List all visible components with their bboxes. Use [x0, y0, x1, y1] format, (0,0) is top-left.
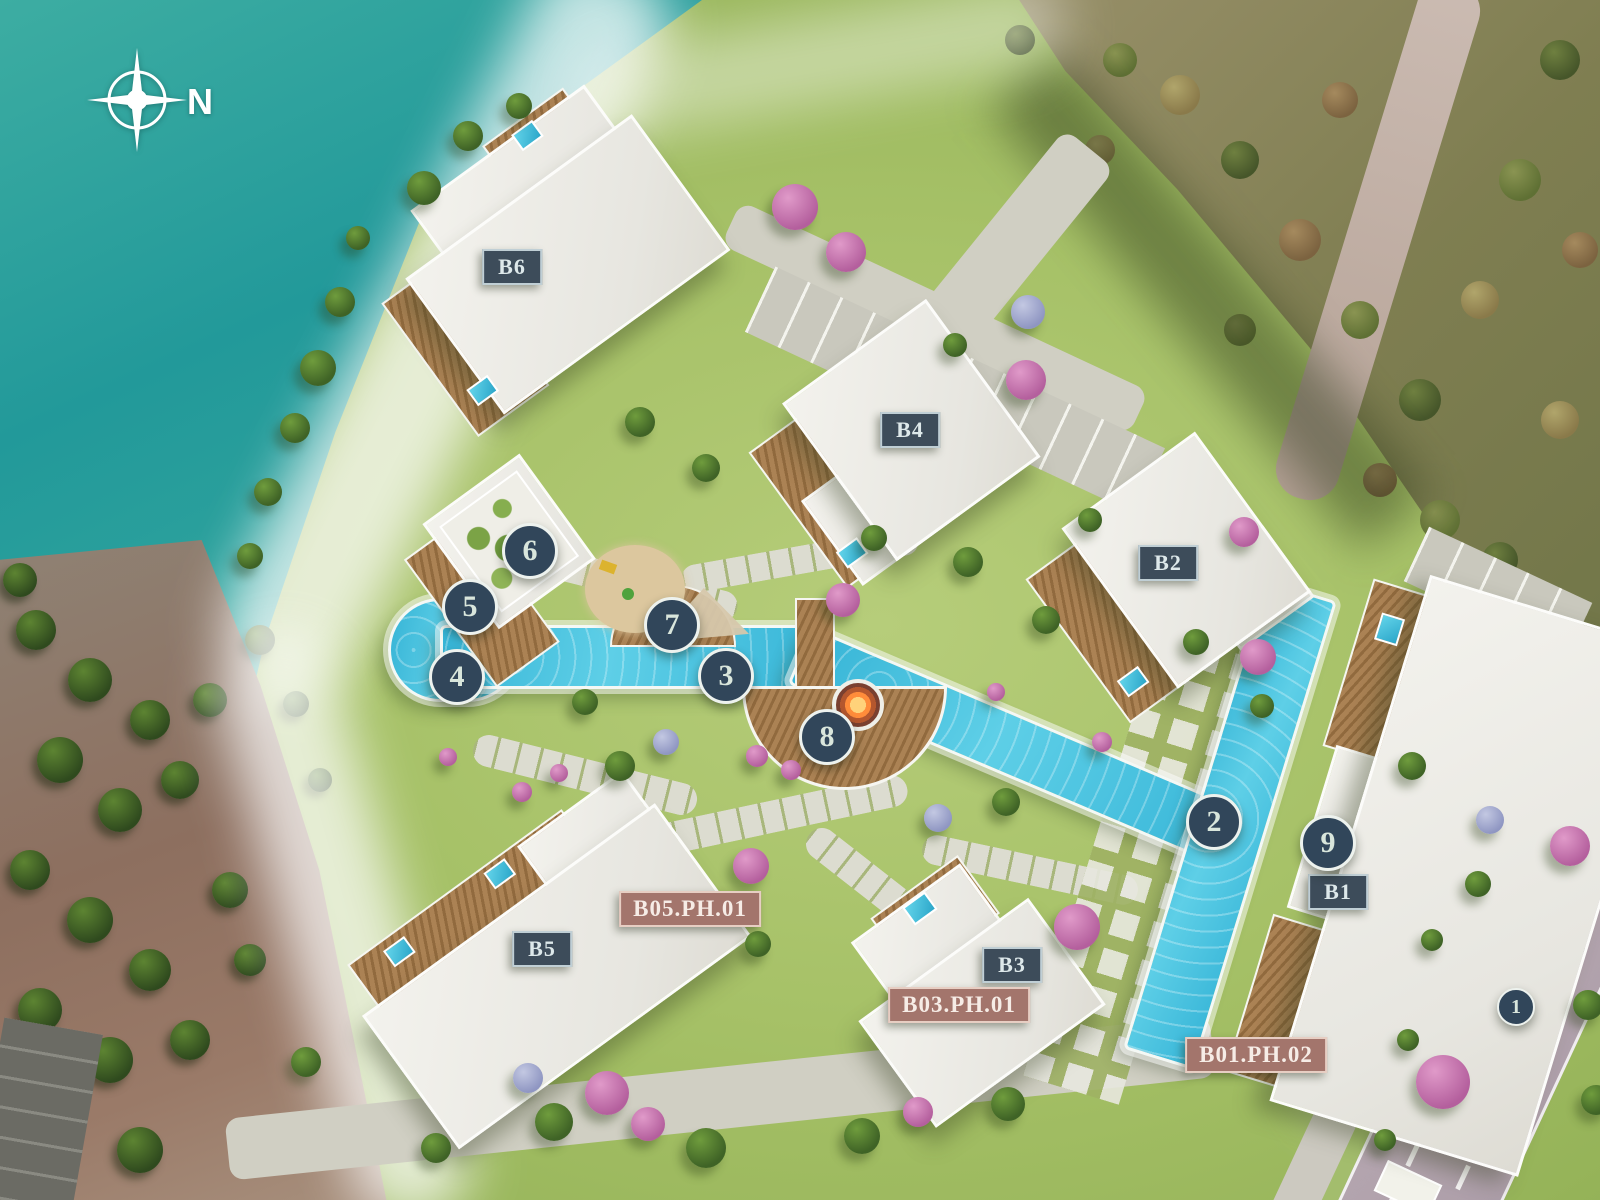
bougainvillea-tree — [585, 1071, 629, 1115]
tree — [861, 525, 887, 551]
mangrove-tree — [10, 850, 50, 890]
compass-rose — [72, 35, 202, 165]
mangrove-tree — [98, 788, 142, 832]
site-marker-7[interactable]: 7 — [644, 597, 700, 653]
mangrove-tree — [129, 949, 171, 991]
bougainvillea-tree — [1240, 639, 1276, 675]
mangrove-tree — [3, 563, 37, 597]
flower-bush — [550, 764, 568, 782]
bougainvillea-tree — [1550, 826, 1590, 866]
site-marker-2[interactable]: 2 — [1186, 794, 1242, 850]
mangrove-tree — [68, 658, 112, 702]
tree — [300, 350, 336, 386]
bougainvillea-tree — [1416, 1055, 1470, 1109]
building-label-b4[interactable]: B4 — [880, 412, 940, 448]
phase-label-b01-ph02[interactable]: B01.PH.02 — [1185, 1037, 1327, 1073]
forest-tree — [1562, 232, 1598, 268]
mangrove-tree — [212, 872, 248, 908]
flower-bush — [781, 760, 801, 780]
tree — [1032, 606, 1060, 634]
tree — [421, 1133, 451, 1163]
bougainvillea-tree — [1229, 517, 1259, 547]
tree — [407, 171, 441, 205]
site-marker-9[interactable]: 9 — [1300, 815, 1356, 871]
tree — [1421, 929, 1443, 951]
tree — [692, 454, 720, 482]
mangrove-tree — [130, 700, 170, 740]
bougainvillea-tree — [1006, 360, 1046, 400]
flower-bush — [746, 745, 768, 767]
tree — [325, 287, 355, 317]
tree — [1397, 1029, 1419, 1051]
mangrove-tree — [67, 897, 113, 943]
jacaranda-tree — [513, 1063, 543, 1093]
building-label-b5[interactable]: B5 — [512, 931, 572, 967]
mangrove-tree — [117, 1127, 163, 1173]
bougainvillea-tree — [903, 1097, 933, 1127]
bougainvillea-tree — [826, 232, 866, 272]
phase-label-b05-ph01[interactable]: B05.PH.01 — [619, 891, 761, 927]
forest-tree — [1461, 281, 1499, 319]
tree — [1078, 508, 1102, 532]
tree — [254, 478, 282, 506]
tree — [605, 751, 635, 781]
site-marker-1[interactable]: 1 — [1497, 988, 1535, 1026]
tree — [346, 226, 370, 250]
mangrove-tree — [161, 761, 199, 799]
forest-tree — [1541, 401, 1579, 439]
tree — [237, 543, 263, 569]
site-marker-4[interactable]: 4 — [429, 649, 485, 705]
site-marker-3[interactable]: 3 — [698, 648, 754, 704]
tree — [1465, 871, 1491, 897]
tree — [844, 1118, 880, 1154]
tree — [1581, 1085, 1600, 1115]
forest-tree — [1499, 159, 1541, 201]
bougainvillea-tree — [733, 848, 769, 884]
forest-tree — [1103, 43, 1137, 77]
jacaranda-tree — [1476, 806, 1504, 834]
bougainvillea-tree — [772, 184, 818, 230]
site-plan: N B6 B4 B2 B1 B5 B3 B05.PH.01 B03.PH.01 … — [0, 0, 1600, 1200]
flower-bush — [1092, 732, 1112, 752]
jacaranda-tree — [653, 729, 679, 755]
tree — [1374, 1129, 1396, 1151]
mangrove-tree — [170, 1020, 210, 1060]
forest-tree — [1341, 301, 1379, 339]
tree — [506, 93, 532, 119]
forest-tree — [1540, 40, 1580, 80]
jacaranda-tree — [1011, 295, 1045, 329]
tree — [535, 1103, 573, 1141]
tree — [1250, 694, 1274, 718]
building-label-b6[interactable]: B6 — [482, 249, 542, 285]
mangrove-tree — [16, 610, 56, 650]
site-marker-6[interactable]: 6 — [502, 523, 558, 579]
flower-bush — [987, 683, 1005, 701]
forest-tree — [1160, 75, 1200, 115]
building-label-b1[interactable]: B1 — [1308, 874, 1368, 910]
flower-bush — [512, 782, 532, 802]
building-label-b2[interactable]: B2 — [1138, 545, 1198, 581]
tree — [1183, 629, 1209, 655]
site-marker-8[interactable]: 8 — [799, 709, 855, 765]
tree — [280, 413, 310, 443]
tree — [686, 1128, 726, 1168]
tree — [953, 547, 983, 577]
tree — [1573, 990, 1600, 1020]
bougainvillea-tree — [631, 1107, 665, 1141]
tree — [625, 407, 655, 437]
flower-bush — [439, 748, 457, 766]
forest-tree — [1399, 379, 1441, 421]
tree — [943, 333, 967, 357]
tree — [291, 1047, 321, 1077]
phase-label-b03-ph01[interactable]: B03.PH.01 — [888, 987, 1030, 1023]
forest-tree — [1322, 82, 1358, 118]
forest-tree — [1279, 219, 1321, 261]
mangrove-tree — [37, 737, 83, 783]
jacaranda-tree — [924, 804, 952, 832]
tree — [745, 931, 771, 957]
forest-tree — [1221, 141, 1259, 179]
tree — [453, 121, 483, 151]
tree — [992, 788, 1020, 816]
building-label-b3[interactable]: B3 — [982, 947, 1042, 983]
tree — [572, 689, 598, 715]
site-marker-5[interactable]: 5 — [442, 579, 498, 635]
mangrove-tree — [234, 944, 266, 976]
bougainvillea-tree — [1054, 904, 1100, 950]
compass-north-label: N — [187, 81, 213, 123]
tree — [1398, 752, 1426, 780]
tree — [991, 1087, 1025, 1121]
bougainvillea-tree — [826, 583, 860, 617]
